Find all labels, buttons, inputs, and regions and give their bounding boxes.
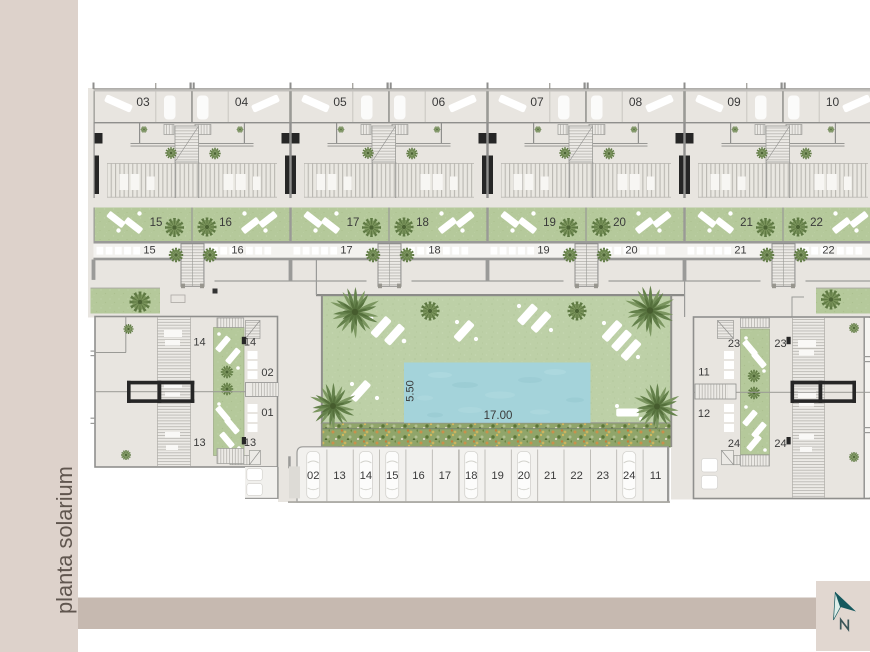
svg-text:21: 21: [740, 217, 753, 229]
svg-text:04: 04: [235, 95, 249, 109]
svg-text:12: 12: [698, 408, 710, 420]
svg-text:18: 18: [465, 470, 477, 482]
svg-text:14: 14: [193, 337, 205, 349]
svg-text:18: 18: [416, 217, 429, 229]
svg-text:22: 22: [810, 217, 823, 229]
svg-text:17: 17: [347, 217, 360, 229]
svg-text:23: 23: [597, 470, 609, 482]
svg-text:21: 21: [544, 470, 556, 482]
svg-text:19: 19: [491, 470, 503, 482]
svg-text:10: 10: [826, 95, 840, 109]
svg-text:11: 11: [698, 367, 709, 379]
svg-text:01: 01: [261, 407, 273, 419]
svg-text:15: 15: [386, 470, 398, 482]
svg-text:20: 20: [613, 217, 626, 229]
svg-text:20: 20: [518, 470, 530, 482]
svg-text:18: 18: [428, 245, 440, 257]
svg-text:16: 16: [412, 470, 424, 482]
svg-text:17.00: 17.00: [484, 410, 513, 422]
svg-text:17: 17: [439, 470, 451, 482]
svg-text:21: 21: [734, 245, 746, 257]
svg-text:16: 16: [231, 245, 243, 257]
svg-text:19: 19: [543, 217, 556, 229]
svg-text:16: 16: [219, 217, 232, 229]
svg-text:24: 24: [774, 438, 786, 450]
svg-text:22: 22: [822, 245, 834, 257]
svg-text:06: 06: [432, 95, 446, 109]
svg-text:20: 20: [625, 245, 637, 257]
svg-text:13: 13: [333, 470, 345, 482]
svg-text:08: 08: [629, 95, 643, 109]
svg-text:13: 13: [244, 437, 256, 449]
svg-text:15: 15: [150, 217, 163, 229]
svg-text:14: 14: [244, 337, 256, 349]
svg-text:22: 22: [570, 470, 582, 482]
svg-text:13: 13: [193, 437, 205, 449]
svg-text:24: 24: [728, 438, 740, 450]
svg-text:03: 03: [136, 95, 150, 109]
svg-text:05: 05: [333, 95, 347, 109]
svg-text:02: 02: [307, 470, 319, 482]
svg-text:14: 14: [360, 470, 372, 482]
svg-text:15: 15: [143, 245, 155, 257]
svg-text:24: 24: [623, 470, 635, 482]
svg-text:5.50: 5.50: [405, 380, 417, 401]
svg-text:planta solarium: planta solarium: [52, 466, 77, 614]
svg-text:23: 23: [774, 338, 786, 350]
svg-text:09: 09: [727, 95, 741, 109]
svg-text:02: 02: [261, 367, 273, 379]
svg-text:19: 19: [537, 245, 549, 257]
svg-text:07: 07: [530, 95, 544, 109]
svg-text:11: 11: [650, 470, 662, 482]
svg-text:17: 17: [340, 245, 352, 257]
svg-text:23: 23: [728, 338, 740, 350]
